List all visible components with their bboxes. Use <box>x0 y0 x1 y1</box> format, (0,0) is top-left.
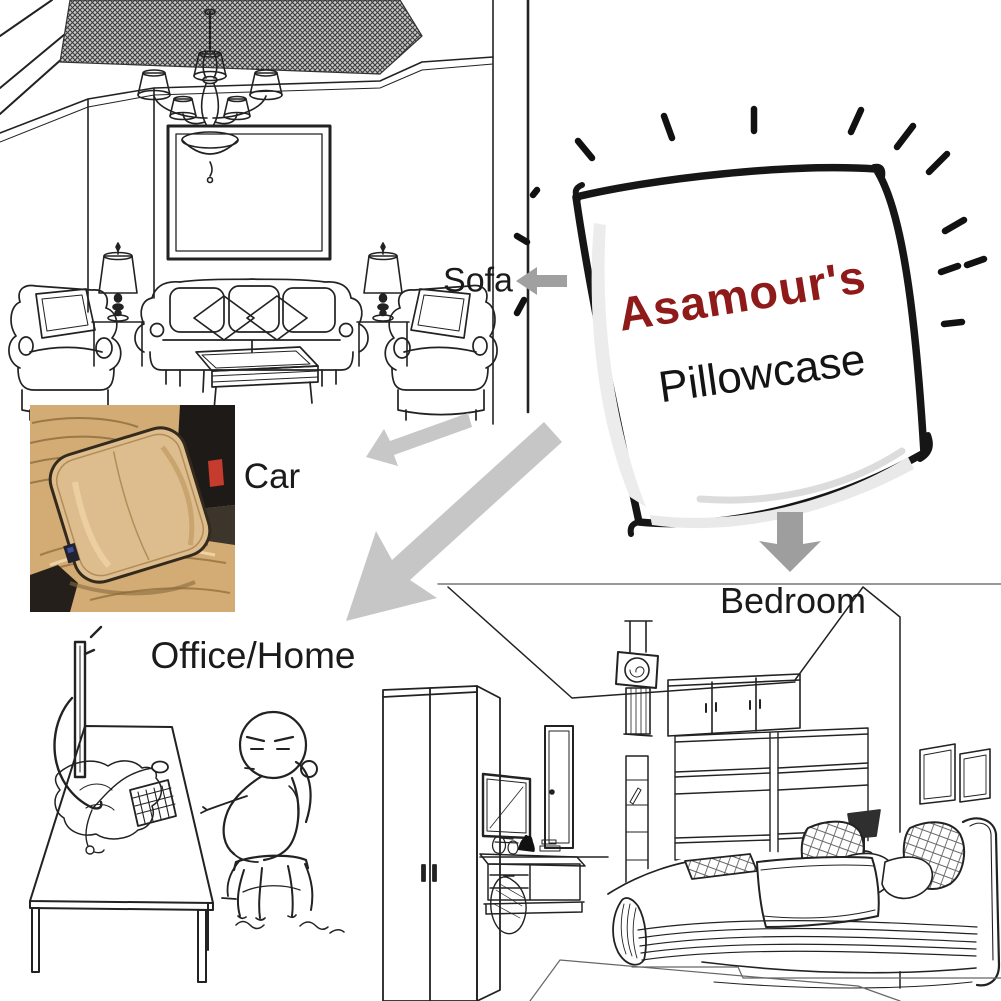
seatbelt-buckle <box>208 459 224 487</box>
bedroom-illustration <box>380 570 1001 1001</box>
motion-dashes <box>85 627 101 654</box>
living-room-illustration <box>0 0 530 430</box>
ground-squiggles <box>236 922 344 934</box>
label-bedroom: Bedroom <box>720 580 866 622</box>
label-office: Office/Home <box>151 635 356 677</box>
table-lamp-left <box>92 243 144 366</box>
office-illustration <box>0 620 400 1001</box>
keyboard <box>130 780 176 826</box>
tv-stand <box>480 835 585 934</box>
ceiling-fan-unit <box>616 621 658 736</box>
mouse <box>152 762 168 773</box>
label-sofa: Sofa <box>443 262 513 301</box>
wall-pictures <box>920 744 990 804</box>
ceiling-panel <box>60 0 422 74</box>
person <box>201 712 306 899</box>
chair <box>234 761 317 920</box>
tv <box>483 774 530 843</box>
armchair <box>9 286 121 420</box>
product-usage-diagram: Asamour's Pillowcase <box>0 0 1001 1001</box>
coffee-table <box>196 347 318 410</box>
wardrobe <box>383 686 500 1001</box>
car-seat-photo <box>30 405 235 612</box>
label-car: Car <box>244 457 300 497</box>
door <box>545 726 573 848</box>
